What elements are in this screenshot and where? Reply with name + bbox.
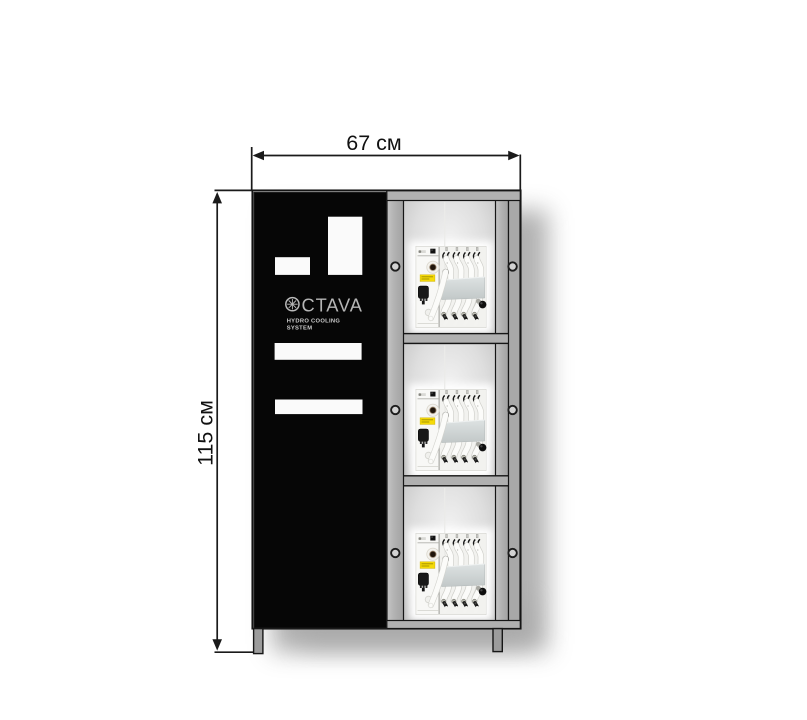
svg-text:CTAVA: CTAVA (302, 294, 363, 315)
svg-text:HYDRO COOLING: HYDRO COOLING (287, 318, 341, 324)
svg-text:SYSTEM: SYSTEM (287, 326, 313, 332)
svg-text:115 см: 115 см (194, 400, 218, 466)
svg-text:67 см: 67 см (346, 131, 401, 155)
